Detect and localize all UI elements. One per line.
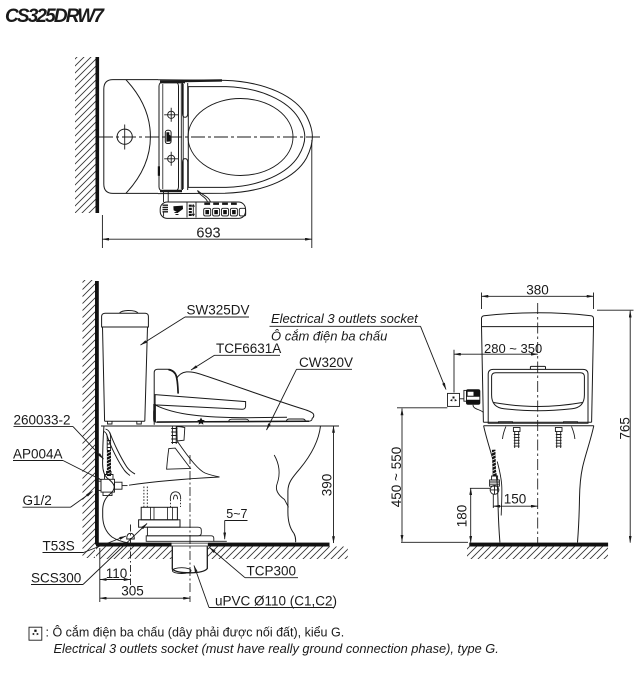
svg-text:SCS300: SCS300 <box>31 570 81 585</box>
svg-text:5~7: 5~7 <box>226 507 247 521</box>
svg-text:AP004A: AP004A <box>13 446 63 461</box>
svg-text:180: 180 <box>454 505 469 528</box>
svg-text:CS325DRW7: CS325DRW7 <box>5 6 105 27</box>
svg-text:CW320V: CW320V <box>299 355 353 370</box>
svg-text:110: 110 <box>106 566 128 581</box>
svg-text:Ô cắm điện ba chấu: Ô cắm điện ba chấu <box>271 329 387 344</box>
svg-text:: Ô cắm điện ba chấu (dây phải: : Ô cắm điện ba chấu (dây phải được nối … <box>46 624 345 639</box>
svg-text:T53S: T53S <box>43 538 75 553</box>
svg-text:TCF6631A: TCF6631A <box>216 341 281 356</box>
svg-text:380: 380 <box>526 282 549 297</box>
svg-text:390: 390 <box>320 474 335 497</box>
svg-text:693: 693 <box>196 225 220 241</box>
svg-text:450 ~ 550: 450 ~ 550 <box>389 447 404 507</box>
svg-text:765: 765 <box>617 417 632 440</box>
svg-text:SW325DV: SW325DV <box>187 303 250 318</box>
svg-text:280 ~ 350: 280 ~ 350 <box>484 341 542 356</box>
svg-text:Electrical 3 outlets socket (m: Electrical 3 outlets socket (must have r… <box>54 641 499 656</box>
svg-text:uPVC Ø110 (C1,C2): uPVC Ø110 (C1,C2) <box>215 593 337 608</box>
svg-text:150: 150 <box>504 492 527 507</box>
svg-text:305: 305 <box>121 584 144 599</box>
svg-text:G1/2: G1/2 <box>23 493 52 508</box>
svg-text:TCP300: TCP300 <box>247 564 297 579</box>
svg-text:260033-2: 260033-2 <box>14 412 71 427</box>
svg-text:Electrical 3 outlets socket: Electrical 3 outlets socket <box>271 311 419 326</box>
